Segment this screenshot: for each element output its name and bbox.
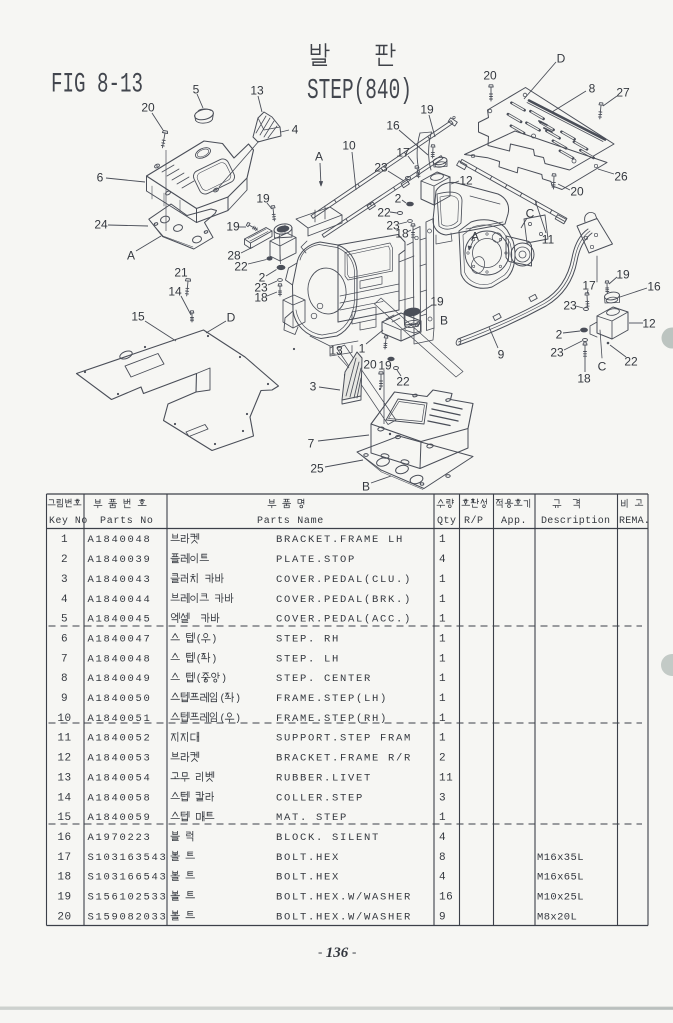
svg-text:17: 17: [396, 145, 410, 159]
svg-text:14: 14: [57, 792, 71, 804]
svg-text:23: 23: [550, 345, 564, 359]
svg-text:22: 22: [377, 205, 391, 219]
svg-text:20: 20: [483, 68, 497, 82]
svg-text:6: 6: [61, 634, 68, 646]
svg-text:A1840047: A1840047: [88, 634, 152, 646]
svg-text:22: 22: [624, 354, 638, 368]
svg-text:(: (: [196, 634, 202, 646]
svg-text:16: 16: [386, 118, 400, 132]
svg-text:4: 4: [439, 554, 446, 566]
svg-text:R/P: R/P: [464, 515, 484, 527]
svg-text:5: 5: [61, 614, 68, 626]
svg-text:Key No: Key No: [49, 515, 88, 526]
svg-text:8: 8: [589, 81, 596, 95]
svg-text:REMA.: REMA.: [619, 516, 650, 527]
svg-text:A1840039: A1840039: [88, 554, 152, 566]
svg-text:26: 26: [614, 169, 628, 183]
svg-text:10: 10: [57, 713, 71, 725]
svg-text:136: 136: [326, 945, 349, 961]
svg-text:): ): [211, 634, 217, 646]
svg-text:4: 4: [439, 832, 446, 844]
svg-text:7: 7: [308, 436, 315, 450]
svg-text:25: 25: [310, 461, 324, 475]
svg-text:19: 19: [430, 294, 444, 308]
svg-text:FRAME.STEP(LH): FRAME.STEP(LH): [276, 693, 388, 705]
svg-text:1: 1: [439, 673, 446, 685]
svg-text:13: 13: [57, 772, 71, 784]
svg-text:16: 16: [57, 832, 71, 844]
svg-text:1: 1: [439, 733, 446, 745]
svg-text:B: B: [362, 479, 370, 493]
svg-text:RUBBER.LIVET: RUBBER.LIVET: [276, 772, 372, 784]
svg-text:STEP. CENTER: STEP. CENTER: [276, 673, 372, 685]
svg-text:1: 1: [439, 812, 446, 824]
svg-text:22: 22: [234, 259, 248, 273]
svg-text:19: 19: [616, 267, 630, 281]
svg-text:20: 20: [363, 357, 377, 371]
svg-text:): ): [235, 713, 241, 725]
svg-text:4: 4: [439, 872, 446, 884]
svg-text:2: 2: [439, 753, 446, 765]
svg-text:11: 11: [439, 772, 453, 784]
svg-text:A1840050: A1840050: [88, 693, 152, 705]
svg-text:STEP. LH: STEP. LH: [276, 653, 340, 665]
svg-text:Qty: Qty: [437, 516, 457, 527]
svg-text:M10x25L: M10x25L: [537, 892, 584, 904]
svg-text:23: 23: [374, 160, 388, 174]
svg-text:C: C: [598, 359, 607, 373]
svg-text:17: 17: [582, 278, 596, 292]
svg-text:S103163543: S103163543: [88, 852, 168, 864]
svg-text:1: 1: [439, 594, 446, 606]
svg-text:BOLT.HEX: BOLT.HEX: [276, 872, 340, 884]
svg-text:BRACKET.FRAME LH: BRACKET.FRAME LH: [276, 534, 404, 546]
svg-text:2: 2: [61, 554, 68, 566]
svg-text:3: 3: [310, 379, 317, 393]
svg-text:9: 9: [498, 347, 505, 361]
svg-text:BOLT.HEX.W/WASHER: BOLT.HEX.W/WASHER: [276, 911, 412, 923]
svg-text:App.: App.: [501, 516, 527, 527]
svg-text:MAT. STEP: MAT. STEP: [276, 812, 348, 824]
svg-text:A1840043: A1840043: [88, 574, 152, 586]
svg-text:A1840058: A1840058: [88, 792, 152, 804]
svg-text:D: D: [227, 310, 236, 324]
svg-text:17: 17: [57, 852, 71, 864]
svg-text:11: 11: [542, 232, 555, 246]
svg-text:5: 5: [193, 82, 200, 96]
svg-text:(: (: [196, 653, 202, 665]
svg-text:A1840053: A1840053: [88, 753, 152, 765]
svg-text:BOLT.HEX.W/WASHER: BOLT.HEX.W/WASHER: [276, 892, 412, 904]
svg-text:15: 15: [57, 812, 71, 824]
svg-text:12: 12: [57, 753, 71, 765]
svg-text:A1840054: A1840054: [88, 772, 152, 784]
svg-text:19: 19: [420, 102, 434, 116]
svg-text:9: 9: [61, 693, 68, 705]
svg-text:Parts Name: Parts Name: [257, 516, 324, 527]
svg-text:1: 1: [439, 614, 446, 626]
svg-text:14: 14: [168, 284, 182, 298]
svg-text:9: 9: [439, 911, 446, 923]
svg-text:A: A: [315, 149, 323, 163]
svg-text:18: 18: [395, 226, 409, 240]
svg-text:A1840049: A1840049: [88, 673, 152, 685]
svg-text:1: 1: [439, 534, 446, 546]
svg-text:10: 10: [342, 138, 356, 152]
svg-text:A1840048: A1840048: [88, 534, 152, 546]
svg-text:1: 1: [439, 693, 446, 705]
svg-text:A1840045: A1840045: [88, 614, 152, 626]
svg-text:8: 8: [439, 852, 446, 864]
svg-text:12: 12: [642, 316, 656, 330]
svg-text:): ): [221, 673, 227, 685]
svg-text:S159082033: S159082033: [88, 911, 168, 923]
svg-text:SUPPORT.STEP FRAM: SUPPORT.STEP FRAM: [276, 733, 412, 745]
svg-text:20: 20: [570, 184, 584, 198]
svg-text:1: 1: [439, 713, 446, 725]
svg-text:13: 13: [250, 83, 264, 97]
svg-text:S103166543: S103166543: [88, 872, 168, 884]
svg-text:2: 2: [556, 327, 563, 341]
svg-text:20: 20: [141, 100, 155, 114]
svg-text:16: 16: [647, 279, 661, 293]
svg-text:COLLER.STEP: COLLER.STEP: [276, 792, 364, 804]
svg-text:STEP. RH: STEP. RH: [276, 634, 340, 646]
svg-text:18: 18: [57, 872, 71, 884]
svg-text:19: 19: [57, 892, 71, 904]
svg-text:FRAME.STEP(RH): FRAME.STEP(RH): [276, 713, 388, 725]
svg-text:1: 1: [439, 574, 446, 586]
svg-text:B: B: [440, 313, 448, 327]
svg-text:BRACKET.FRAME R/R: BRACKET.FRAME R/R: [276, 753, 412, 765]
svg-text:6: 6: [97, 170, 104, 184]
svg-text:11: 11: [57, 733, 71, 745]
svg-text:A1840044: A1840044: [88, 594, 152, 606]
svg-text:A: A: [127, 248, 135, 262]
svg-text:20: 20: [57, 911, 71, 923]
svg-text:STEP(840): STEP(840): [307, 75, 412, 108]
svg-text:): ): [211, 653, 217, 665]
svg-text:): ): [235, 693, 241, 705]
svg-text:21: 21: [174, 265, 188, 279]
svg-text:-: -: [318, 944, 322, 959]
svg-text:A1840059: A1840059: [88, 812, 152, 824]
svg-text:PLATE.STOP: PLATE.STOP: [276, 554, 356, 566]
svg-text:FIG 8-13: FIG 8-13: [51, 69, 143, 101]
svg-text:1: 1: [61, 534, 68, 546]
svg-text:24: 24: [94, 217, 108, 231]
svg-text:7: 7: [61, 653, 68, 665]
svg-text:-: -: [352, 944, 356, 959]
svg-text:COVER.PEDAL(ACC.): COVER.PEDAL(ACC.): [276, 614, 412, 626]
svg-text:4: 4: [292, 122, 299, 136]
svg-text:M16x65L: M16x65L: [537, 872, 584, 884]
svg-text:Parts No: Parts No: [100, 516, 154, 527]
svg-text:A1840048: A1840048: [88, 653, 152, 665]
svg-text:18: 18: [254, 290, 268, 304]
svg-text:Description: Description: [541, 515, 610, 527]
svg-text:23: 23: [563, 298, 577, 312]
svg-text:27: 27: [616, 85, 630, 99]
svg-text:A1840052: A1840052: [88, 733, 152, 745]
svg-text:2: 2: [395, 191, 402, 205]
svg-text:16: 16: [439, 892, 453, 904]
svg-text:A1840051: A1840051: [88, 713, 152, 725]
svg-text:8: 8: [61, 673, 68, 685]
svg-text:19: 19: [256, 191, 270, 205]
svg-text:COVER.PEDAL(BRK.): COVER.PEDAL(BRK.): [276, 594, 412, 606]
svg-text:1: 1: [439, 653, 446, 665]
svg-text:D: D: [557, 51, 566, 65]
svg-text:BOLT.HEX: BOLT.HEX: [276, 852, 340, 864]
svg-text:13: 13: [329, 343, 343, 357]
svg-text:(: (: [220, 713, 226, 725]
svg-text:COVER.PEDAL(CLU.): COVER.PEDAL(CLU.): [276, 574, 412, 586]
svg-text:(: (: [196, 673, 202, 685]
svg-text:3: 3: [61, 574, 68, 586]
svg-text:M16x35L: M16x35L: [537, 852, 584, 864]
svg-text:1: 1: [439, 634, 446, 646]
svg-text:4: 4: [61, 594, 68, 606]
svg-text:19: 19: [378, 358, 392, 372]
svg-text:3: 3: [439, 792, 446, 804]
svg-text:(: (: [220, 693, 226, 705]
svg-text:A1970223: A1970223: [88, 832, 152, 844]
svg-text:18: 18: [577, 371, 591, 385]
svg-text:19: 19: [226, 219, 240, 233]
svg-text:M8x20L: M8x20L: [537, 911, 577, 923]
svg-text:1: 1: [359, 341, 366, 355]
svg-text:12: 12: [459, 173, 473, 187]
svg-text:BLOCK. SILENT: BLOCK. SILENT: [276, 832, 380, 844]
svg-text:S156102533: S156102533: [88, 892, 168, 904]
svg-text:15: 15: [131, 309, 145, 323]
svg-text:22: 22: [396, 374, 410, 388]
svg-text:A: A: [471, 229, 479, 243]
